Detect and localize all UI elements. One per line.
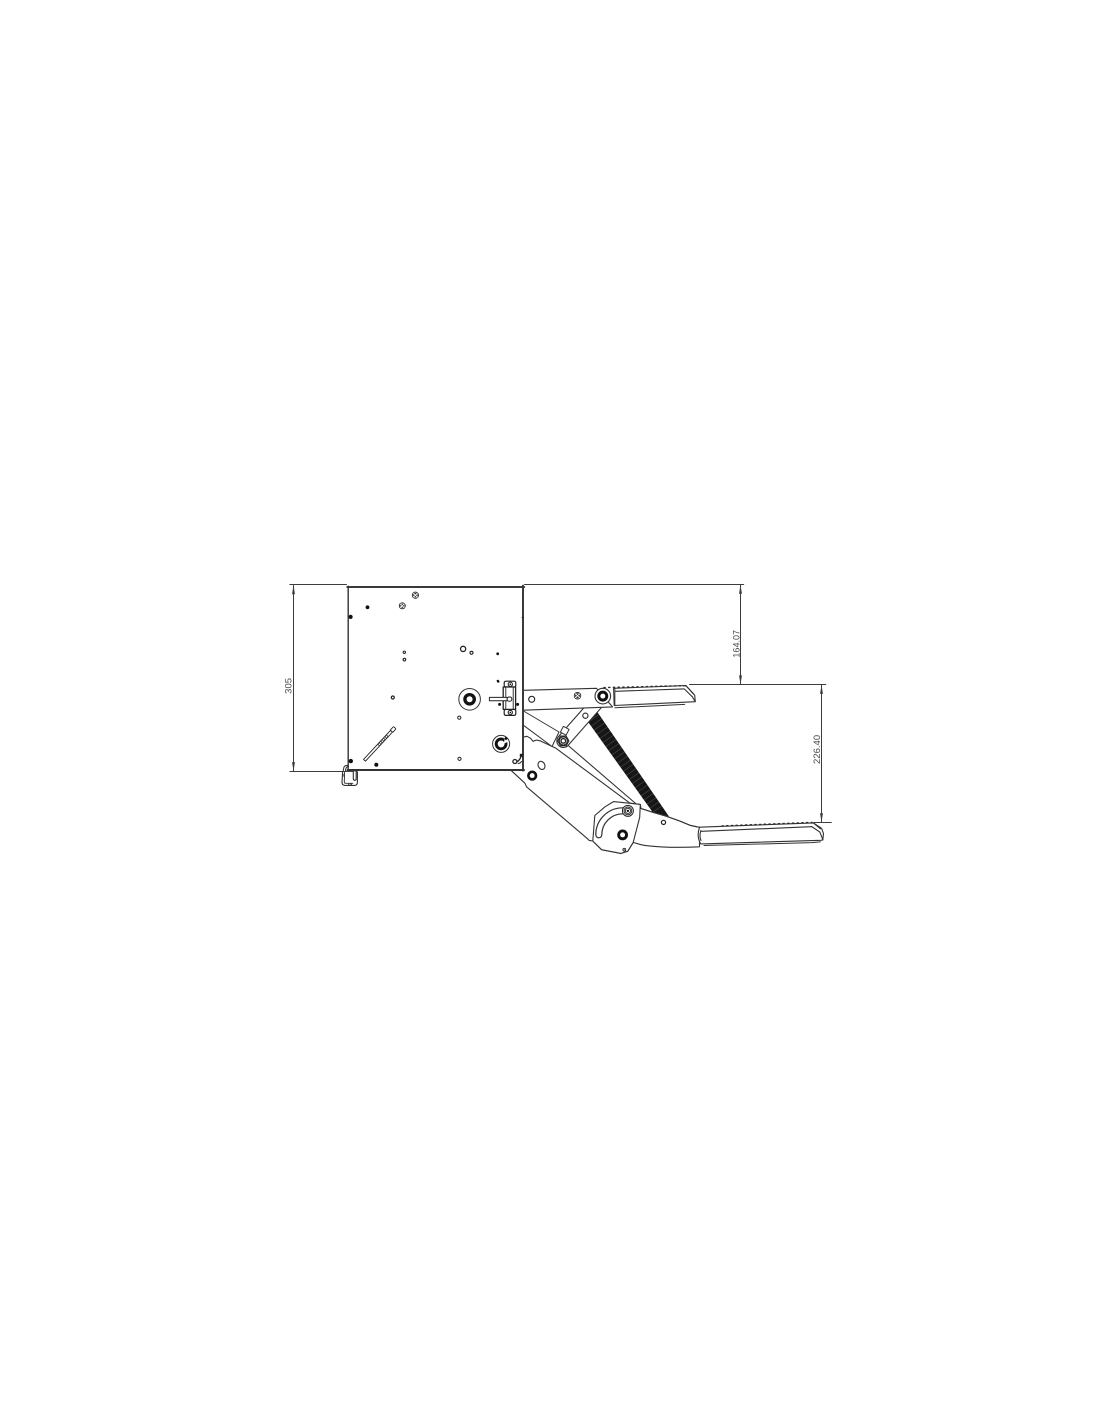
svg-text:305: 305: [284, 678, 295, 694]
svg-text:164.07: 164.07: [732, 630, 742, 658]
svg-text:226.40: 226.40: [812, 735, 823, 764]
